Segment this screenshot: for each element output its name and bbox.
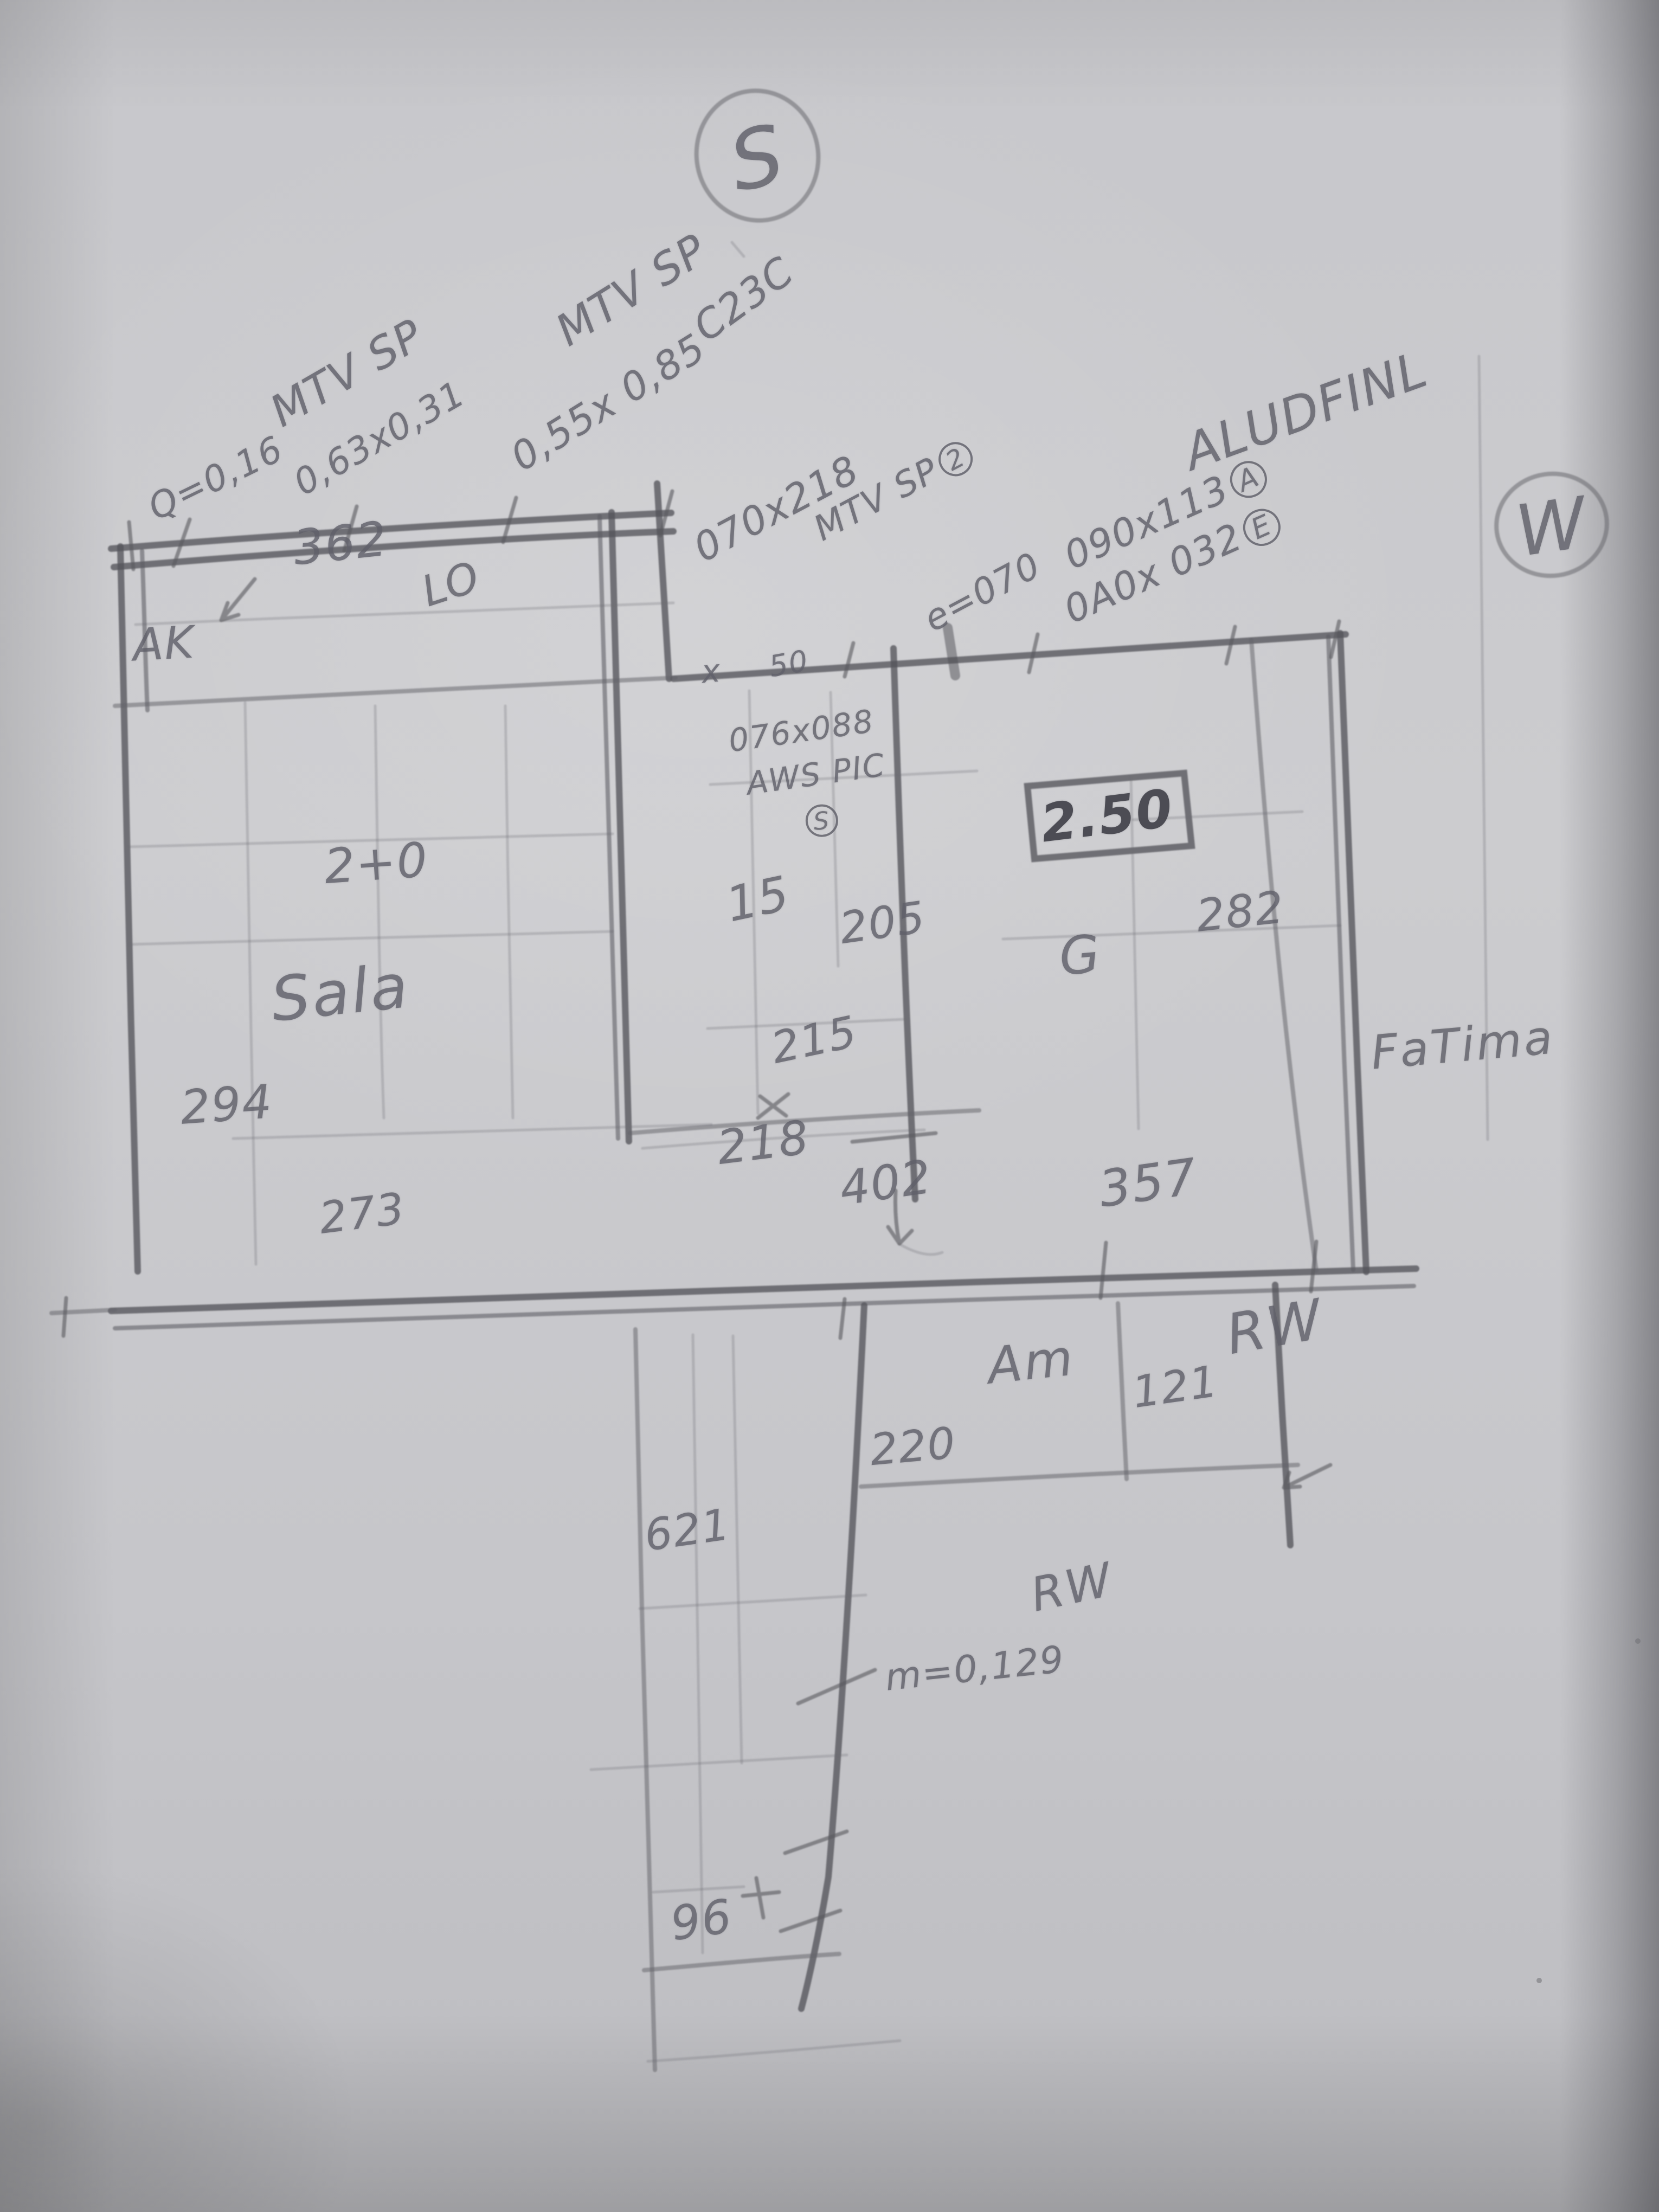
- sala-text: Sala: [268, 951, 413, 1036]
- room-label-sala: Sala: [268, 951, 413, 1036]
- ak-arrow-icon: [221, 579, 255, 620]
- ak-label: AK: [132, 617, 196, 672]
- dim-273-text: 273: [317, 1183, 408, 1244]
- dim-240-text: 2+0: [323, 832, 430, 895]
- x-mark-text: x: [700, 652, 723, 691]
- dim-294-text: 294: [179, 1075, 275, 1135]
- dim-294: 294: [179, 1075, 275, 1135]
- dust-speck: [1536, 1978, 1542, 1983]
- dim-220: 220: [868, 1418, 958, 1475]
- aws-circled-s-icon: S: [804, 803, 839, 839]
- dust-speck: [1635, 1638, 1641, 1644]
- wall-50-mark: 50: [767, 644, 812, 684]
- mark-50-text: 50: [767, 644, 812, 684]
- dim-96: 96: [667, 1889, 736, 1952]
- g-mark: G: [1057, 923, 1103, 987]
- dim-96-text: 96: [667, 1889, 736, 1952]
- compass-west: W: [1511, 481, 1592, 573]
- ak-text: AK: [132, 617, 196, 672]
- dim-282-text: 282: [1194, 882, 1287, 942]
- dim-240: 2+0: [323, 832, 430, 895]
- am-text: Am: [985, 1328, 1078, 1395]
- aws-circled-s: S: [800, 799, 839, 840]
- dim-362: 362: [291, 511, 390, 576]
- g-mark-text: G: [1057, 923, 1103, 987]
- dim-282: 282: [1194, 882, 1287, 942]
- compass-west-letter: W: [1511, 481, 1592, 573]
- floor-plan-sketch-photo: S W MTV SP 0,63x0,31 Q=0,16 MTV SP C23C …: [0, 0, 1659, 2212]
- dim-220-text: 220: [868, 1418, 958, 1475]
- room-label-am: Am: [985, 1328, 1078, 1395]
- dim-218: 218: [714, 1110, 812, 1175]
- dim-273: 273: [317, 1183, 408, 1244]
- dim-218-text: 218: [714, 1110, 812, 1175]
- wall-x-mark: x: [700, 652, 723, 691]
- dim-362-text: 362: [291, 511, 390, 576]
